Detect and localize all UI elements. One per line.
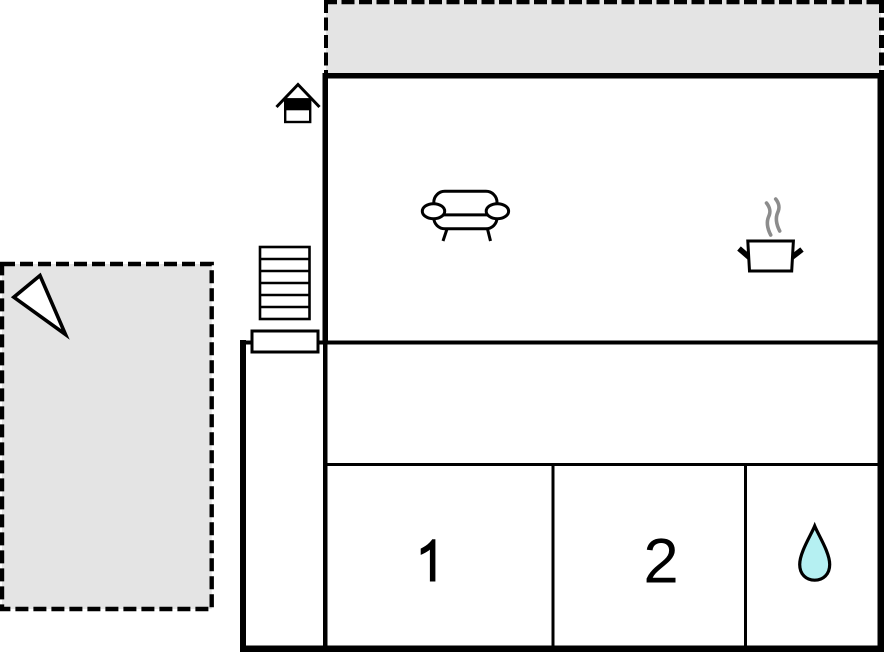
svg-text:2: 2: [643, 527, 678, 597]
